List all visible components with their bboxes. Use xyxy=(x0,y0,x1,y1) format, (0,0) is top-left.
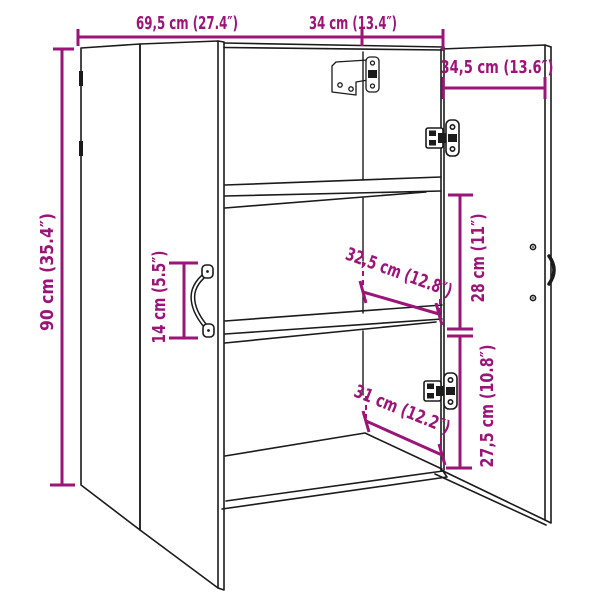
label-door-width: 34,5 cm (13.6″) xyxy=(441,57,554,78)
cabinet-top-front-edge xyxy=(224,43,443,47)
label-overall-width: 69,5 cm (27.4″) xyxy=(136,13,238,34)
label-lower-compartment: 27,5 cm (10.8″) xyxy=(477,345,498,468)
hinge-arm-screw-2 xyxy=(429,140,436,146)
door-screw-dot-bottom xyxy=(532,297,534,299)
left-side-panel xyxy=(81,44,140,530)
hinge-arm-screw-1 xyxy=(427,384,434,390)
dimension-diagram: 69,5 cm (27.4″) 34 cm (13.4″) 34,5 cm (1… xyxy=(0,0,600,600)
door-handle xyxy=(193,265,214,337)
label-inner-upper-width: 32,5 cm (12.8″) xyxy=(343,244,455,302)
bracket-slot xyxy=(368,70,377,78)
label-upper-compartment: 28 cm (11″) xyxy=(468,214,489,303)
hinge-arm-screw-1 xyxy=(429,131,436,137)
dimension-labels: 69,5 cm (27.4″) 34 cm (13.4″) 34,5 cm (1… xyxy=(37,13,554,468)
door-screw-dot-top xyxy=(532,246,534,248)
shelf-upper-top-edge xyxy=(225,177,441,185)
bracket-screw-1 xyxy=(338,83,342,87)
handle-screw-bottom xyxy=(207,329,210,332)
shelf-middle-top-edge xyxy=(225,305,442,321)
bottom-panel xyxy=(222,433,447,509)
bracket-screw-2 xyxy=(349,87,353,91)
top-bracket xyxy=(332,57,379,95)
label-overall-height: 90 cm (35.4″) xyxy=(37,213,58,331)
hinge-upper xyxy=(426,120,459,156)
hinge-plate-slot xyxy=(446,387,455,395)
shelf-upper xyxy=(225,177,441,208)
bottom-back-edge xyxy=(225,433,442,469)
bottom-front-edge xyxy=(226,471,443,501)
left-door-edge-band xyxy=(218,41,224,590)
shelf-middle xyxy=(225,305,442,343)
label-handle-length: 14 cm (5.5″) xyxy=(149,251,170,344)
right-door-bottom-edge xyxy=(435,470,546,525)
label-depth: 34 cm (13.4″) xyxy=(309,13,397,34)
hinge-arm-screw-2 xyxy=(427,393,434,399)
right-door-top-edge xyxy=(441,45,551,49)
cabinet-top-lower-edge xyxy=(224,48,443,51)
left-hinge-mark-bottom xyxy=(79,141,83,156)
hinge-plate-slot xyxy=(448,134,457,142)
dim-door-line xyxy=(443,77,545,99)
bottom-under-edge xyxy=(222,471,447,509)
left-hinge-mark-top xyxy=(79,71,83,86)
cabinet-drawing: 69,5 cm (27.4″) 34 cm (13.4″) 34,5 cm (1… xyxy=(0,0,600,600)
handle-screw-top xyxy=(206,270,209,273)
